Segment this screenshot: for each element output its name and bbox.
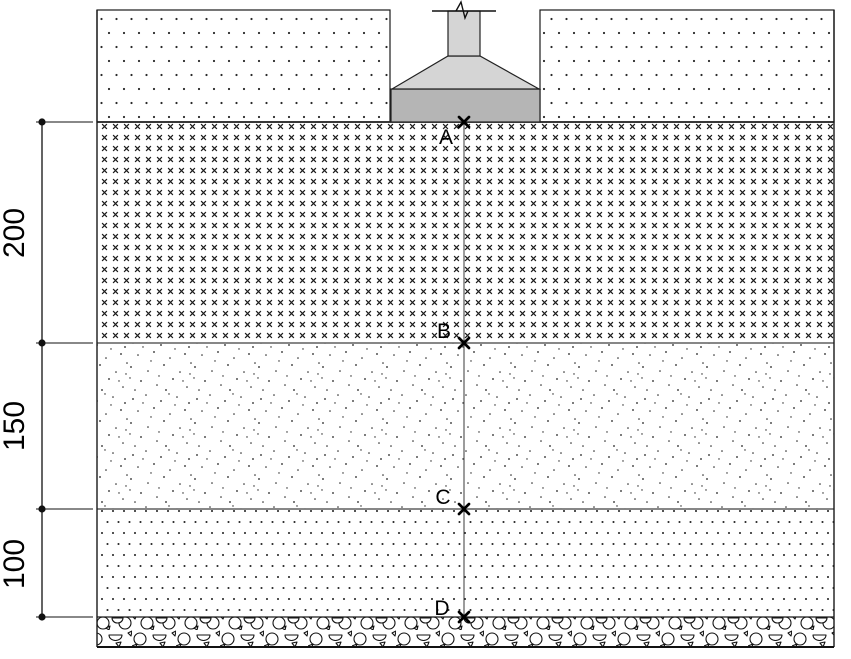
layer-1-crosses: [97, 122, 834, 343]
soil-profile-diagram: 200 150 100 A B C D: [0, 0, 851, 659]
dimension-node-4: [38, 613, 45, 620]
footing-slope: [392, 56, 539, 89]
dimension-label-100: 100: [0, 539, 31, 589]
dimension-node-3: [38, 505, 45, 512]
dimension-node-1: [38, 118, 45, 125]
dimension-label-200: 200: [0, 208, 31, 258]
backfill-block-left: [97, 10, 390, 122]
dimension-axis: 200 150 100: [0, 118, 93, 620]
layer-2-stipple: [97, 343, 834, 509]
diagram-canvas: 200 150 100 A B C D: [0, 0, 851, 659]
point-label-b: B: [437, 320, 451, 343]
point-label-c: C: [435, 486, 450, 509]
footing: [391, 2, 540, 122]
point-label-a: A: [439, 126, 453, 149]
column: [448, 11, 480, 56]
footing-base: [391, 89, 540, 122]
point-label-d: D: [434, 597, 449, 620]
gravel-band: [97, 617, 834, 647]
backfill-block-right: [540, 10, 834, 122]
dimension-label-150: 150: [0, 401, 31, 451]
layer-3-dots: [97, 509, 834, 617]
dimension-node-2: [38, 339, 45, 346]
